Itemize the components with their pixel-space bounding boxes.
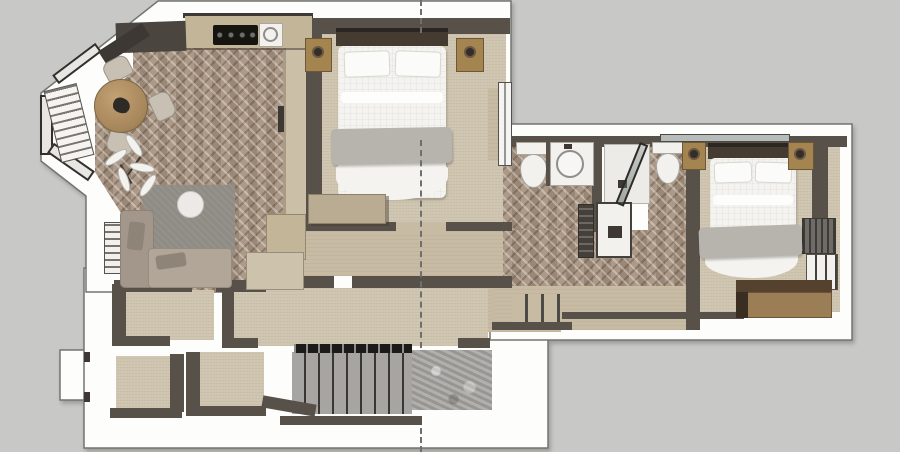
lower-room-c-bottom-wall: [110, 408, 182, 418]
bedroom1-window: [498, 82, 512, 166]
floor-plan-canvas[interactable]: [0, 0, 900, 452]
plant-leaf: [123, 132, 145, 158]
lower-room-b-left-wall: [222, 284, 234, 344]
bedroom2-gray-blanket: [698, 224, 802, 259]
bedroom2-duvet-fold: [713, 195, 793, 205]
bedroom1-pillow: [395, 50, 442, 78]
bedroom1-gray-blanket: [331, 127, 453, 165]
bedroom2-bottom-wall-edge: [562, 312, 744, 319]
table-lamp-icon: [794, 148, 806, 160]
lower-room-d-floor: [200, 352, 264, 414]
vanity-basin-icon: [556, 150, 584, 178]
lower-room-a-left-wall: [112, 284, 126, 342]
bedroom1-duvet-fold: [341, 92, 443, 103]
washing-machine-door-icon: [608, 226, 622, 238]
corridor-bottom-wall-edge: [492, 322, 572, 330]
bedroom1-wardrobe-column: [284, 48, 306, 216]
bedroom2-headboard: [708, 143, 798, 159]
corridor-steps: [512, 294, 560, 324]
table-lamp-icon: [688, 148, 700, 160]
lower-room-b-bottom-edge: [222, 338, 258, 348]
bedroom1-headboard: [336, 28, 448, 46]
lower-room-d-left-wall: [186, 352, 200, 414]
radiator: [802, 218, 836, 254]
section-line-segment: [420, 0, 422, 33]
lower-room-b-floor: [234, 288, 488, 346]
cooktop: [213, 25, 258, 45]
lower-room-d-bottom-wall: [186, 406, 266, 416]
lower-room-a-bottom-wall: [112, 336, 170, 346]
bedroom1-window-sill: [488, 88, 498, 160]
plant-leaf: [137, 172, 159, 198]
bedroom2-dresser-front: [746, 292, 832, 318]
stair-railing: [294, 344, 412, 353]
entry-door-jamb: [84, 392, 90, 402]
entry-door-jamb: [84, 352, 90, 362]
section-line-segment: [420, 140, 422, 348]
lower-wall-edge: [352, 276, 512, 288]
plant-leaf: [103, 146, 129, 168]
kitchen-sink-basin-icon: [263, 27, 278, 42]
section-line-segment: [420, 428, 422, 452]
sofa-cushion: [127, 221, 146, 251]
bedroom2-dresser-side: [736, 292, 748, 318]
lower-bottom-wall-edge: [280, 416, 422, 425]
hall-step-block: [246, 252, 304, 290]
bedroom2-wardrobe: [812, 138, 828, 222]
table-lamp-icon: [464, 46, 476, 58]
lower-room-c-right-wall: [170, 354, 184, 412]
bedroom1-pillow: [344, 50, 391, 78]
bedroom1-dresser: [308, 194, 386, 224]
stair-landing: [412, 350, 492, 410]
lower-room-a-floor: [126, 290, 214, 340]
lower-room-b-door-gap: [334, 276, 352, 288]
plant-leaf: [128, 161, 155, 174]
round-coffee-table: [177, 191, 204, 218]
lower-room-c-floor: [116, 356, 170, 410]
wardrobe-handle: [278, 106, 284, 132]
plant: [95, 133, 171, 205]
laundry-rack: [578, 204, 594, 258]
table-lamp-icon: [312, 46, 324, 58]
vanity-faucet-icon: [564, 144, 572, 149]
bedroom2-top-window: [660, 134, 790, 142]
bedroom2-pillow: [755, 161, 793, 183]
lower-room-b-bottom-right-edge: [458, 338, 490, 348]
bedroom2-pillow: [714, 161, 753, 183]
